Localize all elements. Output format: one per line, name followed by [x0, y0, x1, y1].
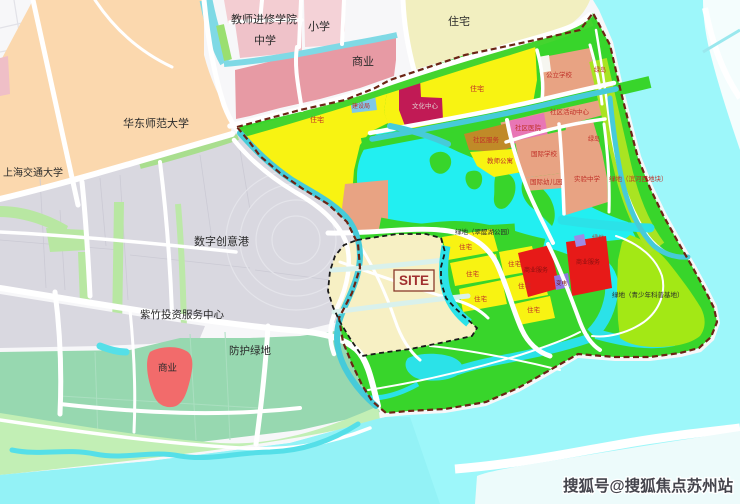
svg-text:SITE: SITE [399, 273, 429, 288]
svg-text:国际学校: 国际学校 [531, 149, 558, 158]
svg-text:教师进修学院: 教师进修学院 [231, 12, 297, 26]
svg-text:住宅: 住宅 [459, 242, 473, 251]
svg-text:小学: 小学 [308, 19, 330, 33]
svg-text:社区活动中心: 社区活动中心 [550, 107, 590, 116]
svg-text:防护绿地: 防护绿地 [229, 344, 271, 357]
svg-text:绿地（翠醍湖公园）: 绿地（翠醍湖公园） [455, 227, 514, 236]
svg-text:住宅: 住宅 [310, 115, 324, 124]
svg-text:数字创意港: 数字创意港 [194, 234, 249, 248]
svg-text:住宅: 住宅 [518, 281, 532, 290]
svg-text:上海交通大学: 上海交通大学 [3, 166, 63, 179]
svg-text:住宅: 住宅 [466, 269, 480, 278]
svg-text:紫竹投资服务中心: 紫竹投资服务中心 [140, 308, 224, 321]
svg-text:搜狐号@搜狐焦点苏州站: 搜狐号@搜狐焦点苏州站 [563, 476, 734, 495]
svg-text:教师公寓: 教师公寓 [487, 156, 513, 165]
svg-text:商业服务: 商业服务 [576, 258, 600, 266]
svg-text:住宅: 住宅 [527, 305, 541, 314]
svg-text:绿地（青少年科普基地）: 绿地（青少年科普基地） [612, 290, 684, 299]
svg-text:实验中学: 实验中学 [574, 174, 601, 183]
svg-text:社区服务: 社区服务 [473, 135, 500, 144]
svg-text:中学: 中学 [254, 33, 276, 47]
svg-text:绿岛: 绿岛 [588, 135, 600, 143]
svg-text:华东师范大学: 华东师范大学 [123, 116, 189, 130]
svg-text:住宅: 住宅 [508, 259, 522, 268]
svg-text:国际幼儿园: 国际幼儿园 [530, 177, 563, 186]
svg-text:商业: 商业 [352, 54, 374, 68]
svg-text:商业服务: 商业服务 [524, 266, 548, 274]
svg-text:变电: 变电 [556, 279, 568, 287]
svg-text:建设局: 建设局 [352, 102, 370, 110]
svg-text:商业: 商业 [158, 362, 177, 374]
svg-text:公立学校: 公立学校 [546, 70, 573, 79]
svg-text:住宅: 住宅 [474, 294, 488, 303]
svg-text:绿地（滨河西地块）: 绿地（滨河西地块） [609, 174, 668, 183]
svg-text:绿地: 绿地 [592, 234, 604, 242]
svg-text:社区医院: 社区医院 [515, 123, 542, 132]
svg-text:文化中心: 文化中心 [412, 101, 439, 110]
svg-text:住宅: 住宅 [470, 84, 484, 93]
svg-text:绿岛: 绿岛 [594, 66, 606, 74]
svg-text:住宅: 住宅 [448, 14, 470, 28]
